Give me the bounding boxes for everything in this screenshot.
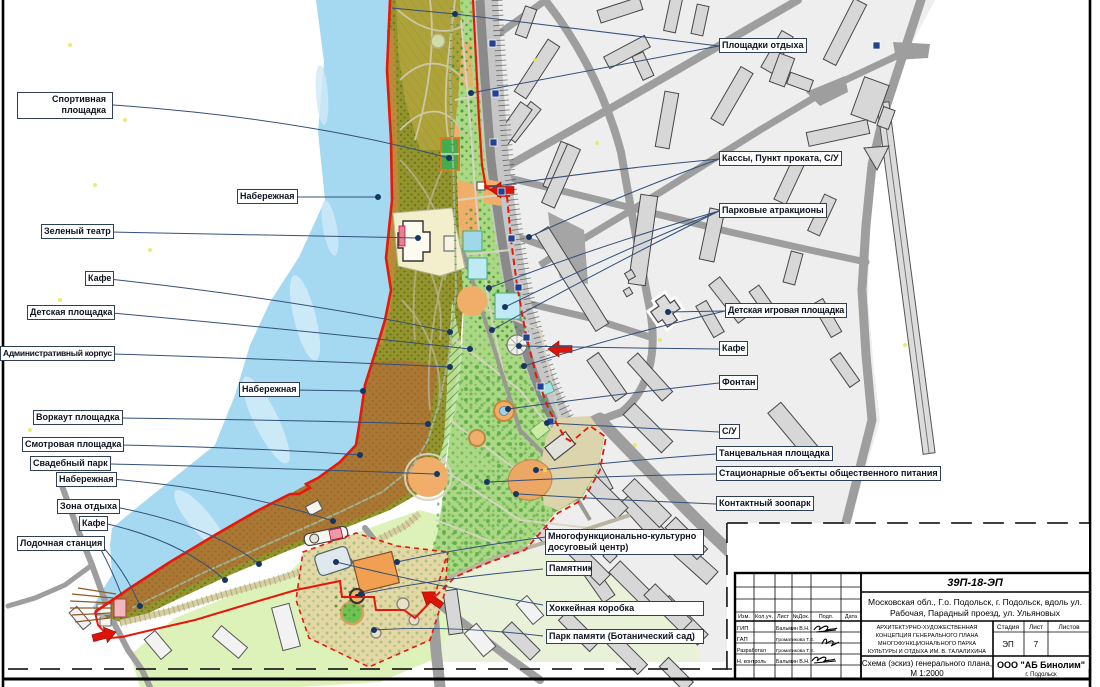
svg-text:Бальмин В.Н.: Бальмин В.Н. (776, 659, 810, 665)
svg-text:ООО "АБ Бинолим": ООО "АБ Бинолим" (997, 660, 1085, 670)
svg-text:Разработал: Разработал (737, 648, 766, 654)
svg-text:Бальмин В.Н.: Бальмин В.Н. (776, 626, 810, 632)
svg-text:№Док.: №Док. (793, 614, 810, 620)
svg-text:г. Подольск: г. Подольск (1025, 672, 1057, 678)
svg-text:39П-18-ЭП: 39П-18-ЭП (947, 577, 1004, 589)
svg-text:Стадия: Стадия (997, 624, 1020, 631)
svg-text:Дата: Дата (845, 614, 858, 620)
svg-text:Громатикова Т.Е.: Громатикова Т.Е. (776, 648, 815, 654)
svg-text:АРХИТЕКТУРНО-ХУДОЖЕСТВЕННАЯ: АРХИТЕКТУРНО-ХУДОЖЕСТВЕННАЯ (877, 625, 978, 631)
svg-text:КОНЦЕПЦИЯ ГЕНЕРАЛЬНОГО ПЛАНА: КОНЦЕПЦИЯ ГЕНЕРАЛЬНОГО ПЛАНА (876, 633, 979, 639)
svg-text:Рабочая, Парадный проезд, ул.: Рабочая, Парадный проезд, ул. Ульяновых (890, 608, 1061, 618)
svg-text:Московская обл., Г.о. Подольск: Московская обл., Г.о. Подольск, г. Подол… (868, 597, 1082, 607)
svg-text:Громатикова Т.Е.: Громатикова Т.Е. (776, 637, 815, 643)
svg-text:ГАП: ГАП (737, 637, 748, 643)
svg-text:Кол.уч.: Кол.уч. (755, 614, 773, 620)
svg-text:Схема (эскиз) генерального пла: Схема (эскиз) генерального плана, (862, 659, 992, 668)
svg-text:М 1:2000: М 1:2000 (910, 669, 944, 678)
svg-text:ГИП: ГИП (737, 626, 748, 632)
svg-text:МНОГОФУНКЦИОНАЛЬНОГО ПАРКА: МНОГОФУНКЦИОНАЛЬНОГО ПАРКА (878, 641, 976, 647)
svg-text:ЭП: ЭП (1002, 640, 1014, 649)
svg-text:7: 7 (1034, 640, 1039, 649)
svg-text:Листов: Листов (1058, 624, 1080, 631)
svg-text:Н. контроль: Н. контроль (737, 659, 766, 665)
svg-text:Подп.: Подп. (819, 614, 834, 620)
svg-text:Лист: Лист (1029, 624, 1043, 631)
svg-text:Лист: Лист (777, 614, 789, 620)
svg-text:Изм.: Изм. (738, 614, 750, 620)
svg-text:КУЛЬТУРЫ И ОТДЫХА ИМ. В. ТАЛАЛ: КУЛЬТУРЫ И ОТДЫХА ИМ. В. ТАЛАЛИХИНА (868, 649, 986, 655)
